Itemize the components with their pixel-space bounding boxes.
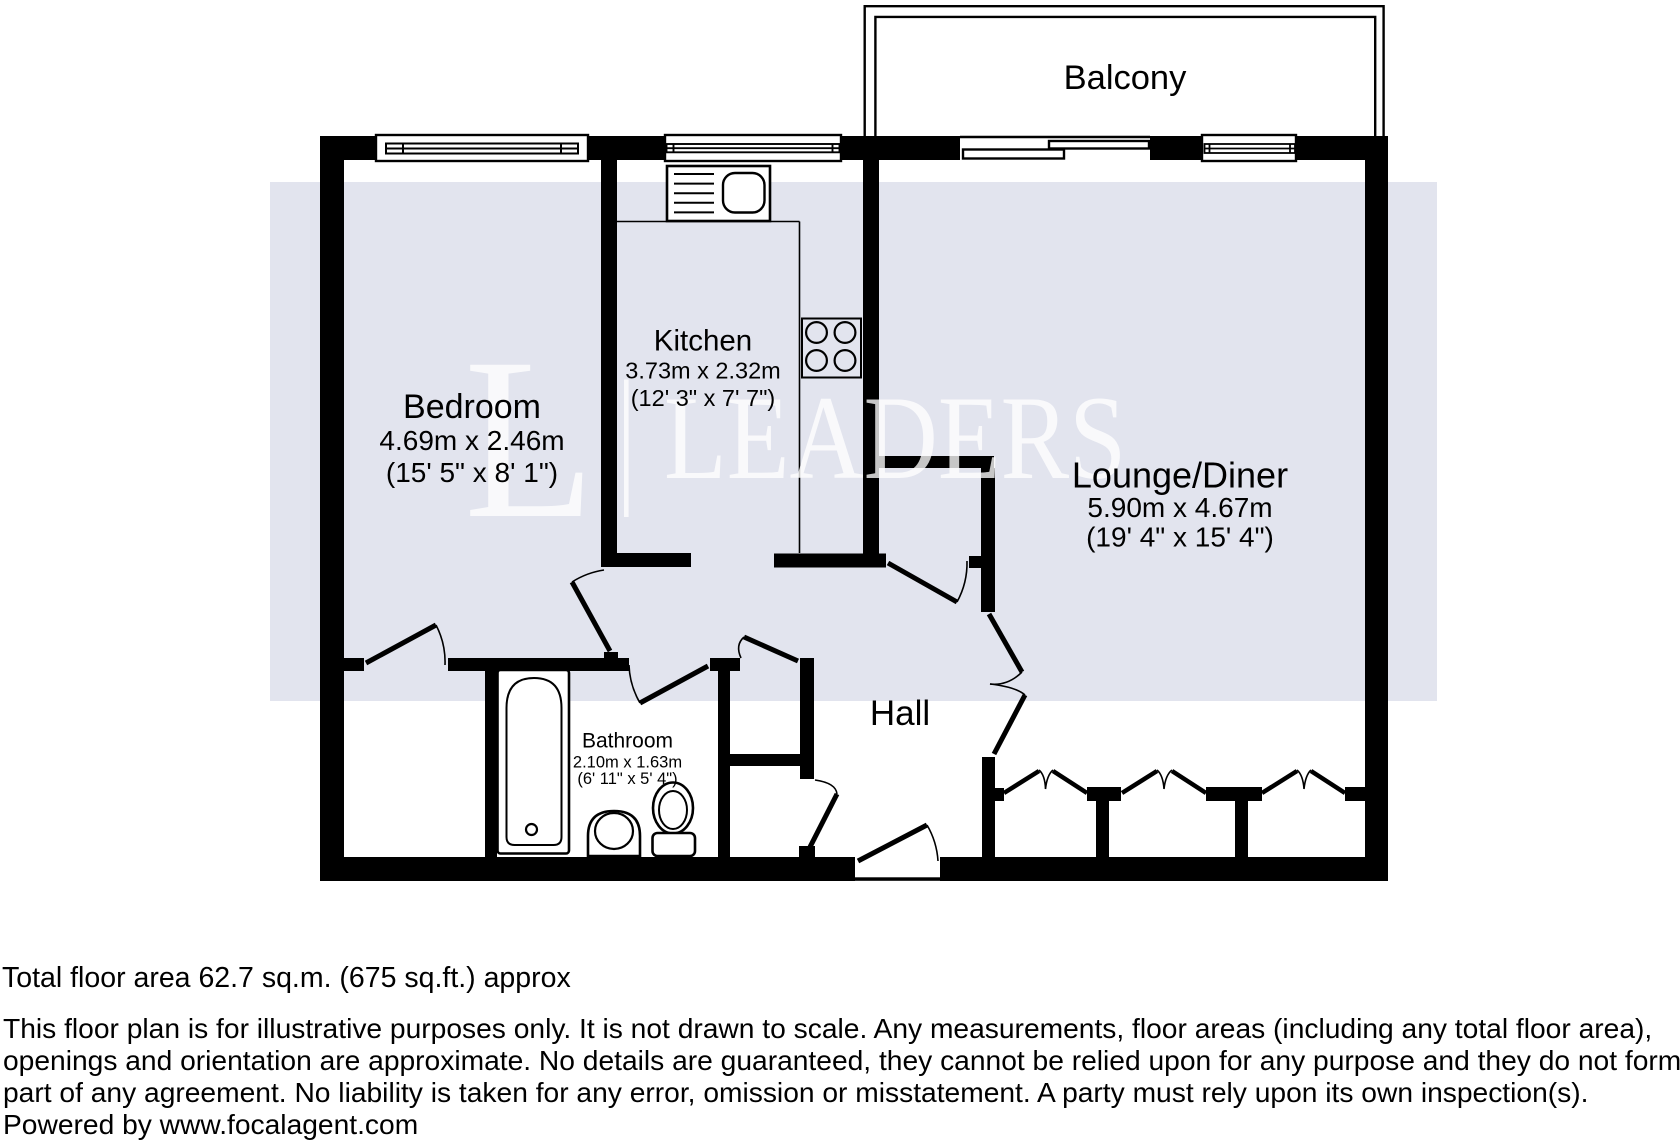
svg-text:Hall: Hall xyxy=(870,694,930,733)
svg-text:Bathroom: Bathroom xyxy=(582,730,673,753)
svg-text:Kitchen: Kitchen xyxy=(654,325,752,358)
svg-text:(15' 5" x 8' 1"): (15' 5" x 8' 1") xyxy=(386,457,558,488)
svg-text:part of any agreement. No liab: part of any agreement. No liability is t… xyxy=(3,1076,1588,1108)
svg-text:Bedroom: Bedroom xyxy=(403,388,541,426)
svg-text:openings and orientation are a: openings and orientation are approximate… xyxy=(3,1044,1680,1076)
svg-text:(6' 11" x 5' 4"): (6' 11" x 5' 4") xyxy=(577,770,677,788)
svg-text:Powered by www.focalagent.com: Powered by www.focalagent.com xyxy=(3,1108,418,1140)
svg-text:2.10m x 1.63m: 2.10m x 1.63m xyxy=(573,754,682,772)
svg-text:Total floor area 62.7 sq.m. (6: Total floor area 62.7 sq.m. (675 sq.ft.)… xyxy=(2,962,571,994)
svg-text:(12' 3" x 7' 7"): (12' 3" x 7' 7") xyxy=(631,385,776,411)
svg-text:Lounge/Diner: Lounge/Diner xyxy=(1072,455,1288,496)
svg-text:(19' 4" x 15' 4"): (19' 4" x 15' 4") xyxy=(1086,522,1274,553)
svg-text:5.90m x 4.67m: 5.90m x 4.67m xyxy=(1087,492,1272,523)
svg-text:3.73m x 2.32m: 3.73m x 2.32m xyxy=(625,358,780,384)
svg-text:Balcony: Balcony xyxy=(1064,59,1187,97)
svg-text:4.69m x 2.46m: 4.69m x 2.46m xyxy=(379,425,564,456)
svg-text:This floor plan is for illustr: This floor plan is for illustrative purp… xyxy=(3,1012,1652,1044)
